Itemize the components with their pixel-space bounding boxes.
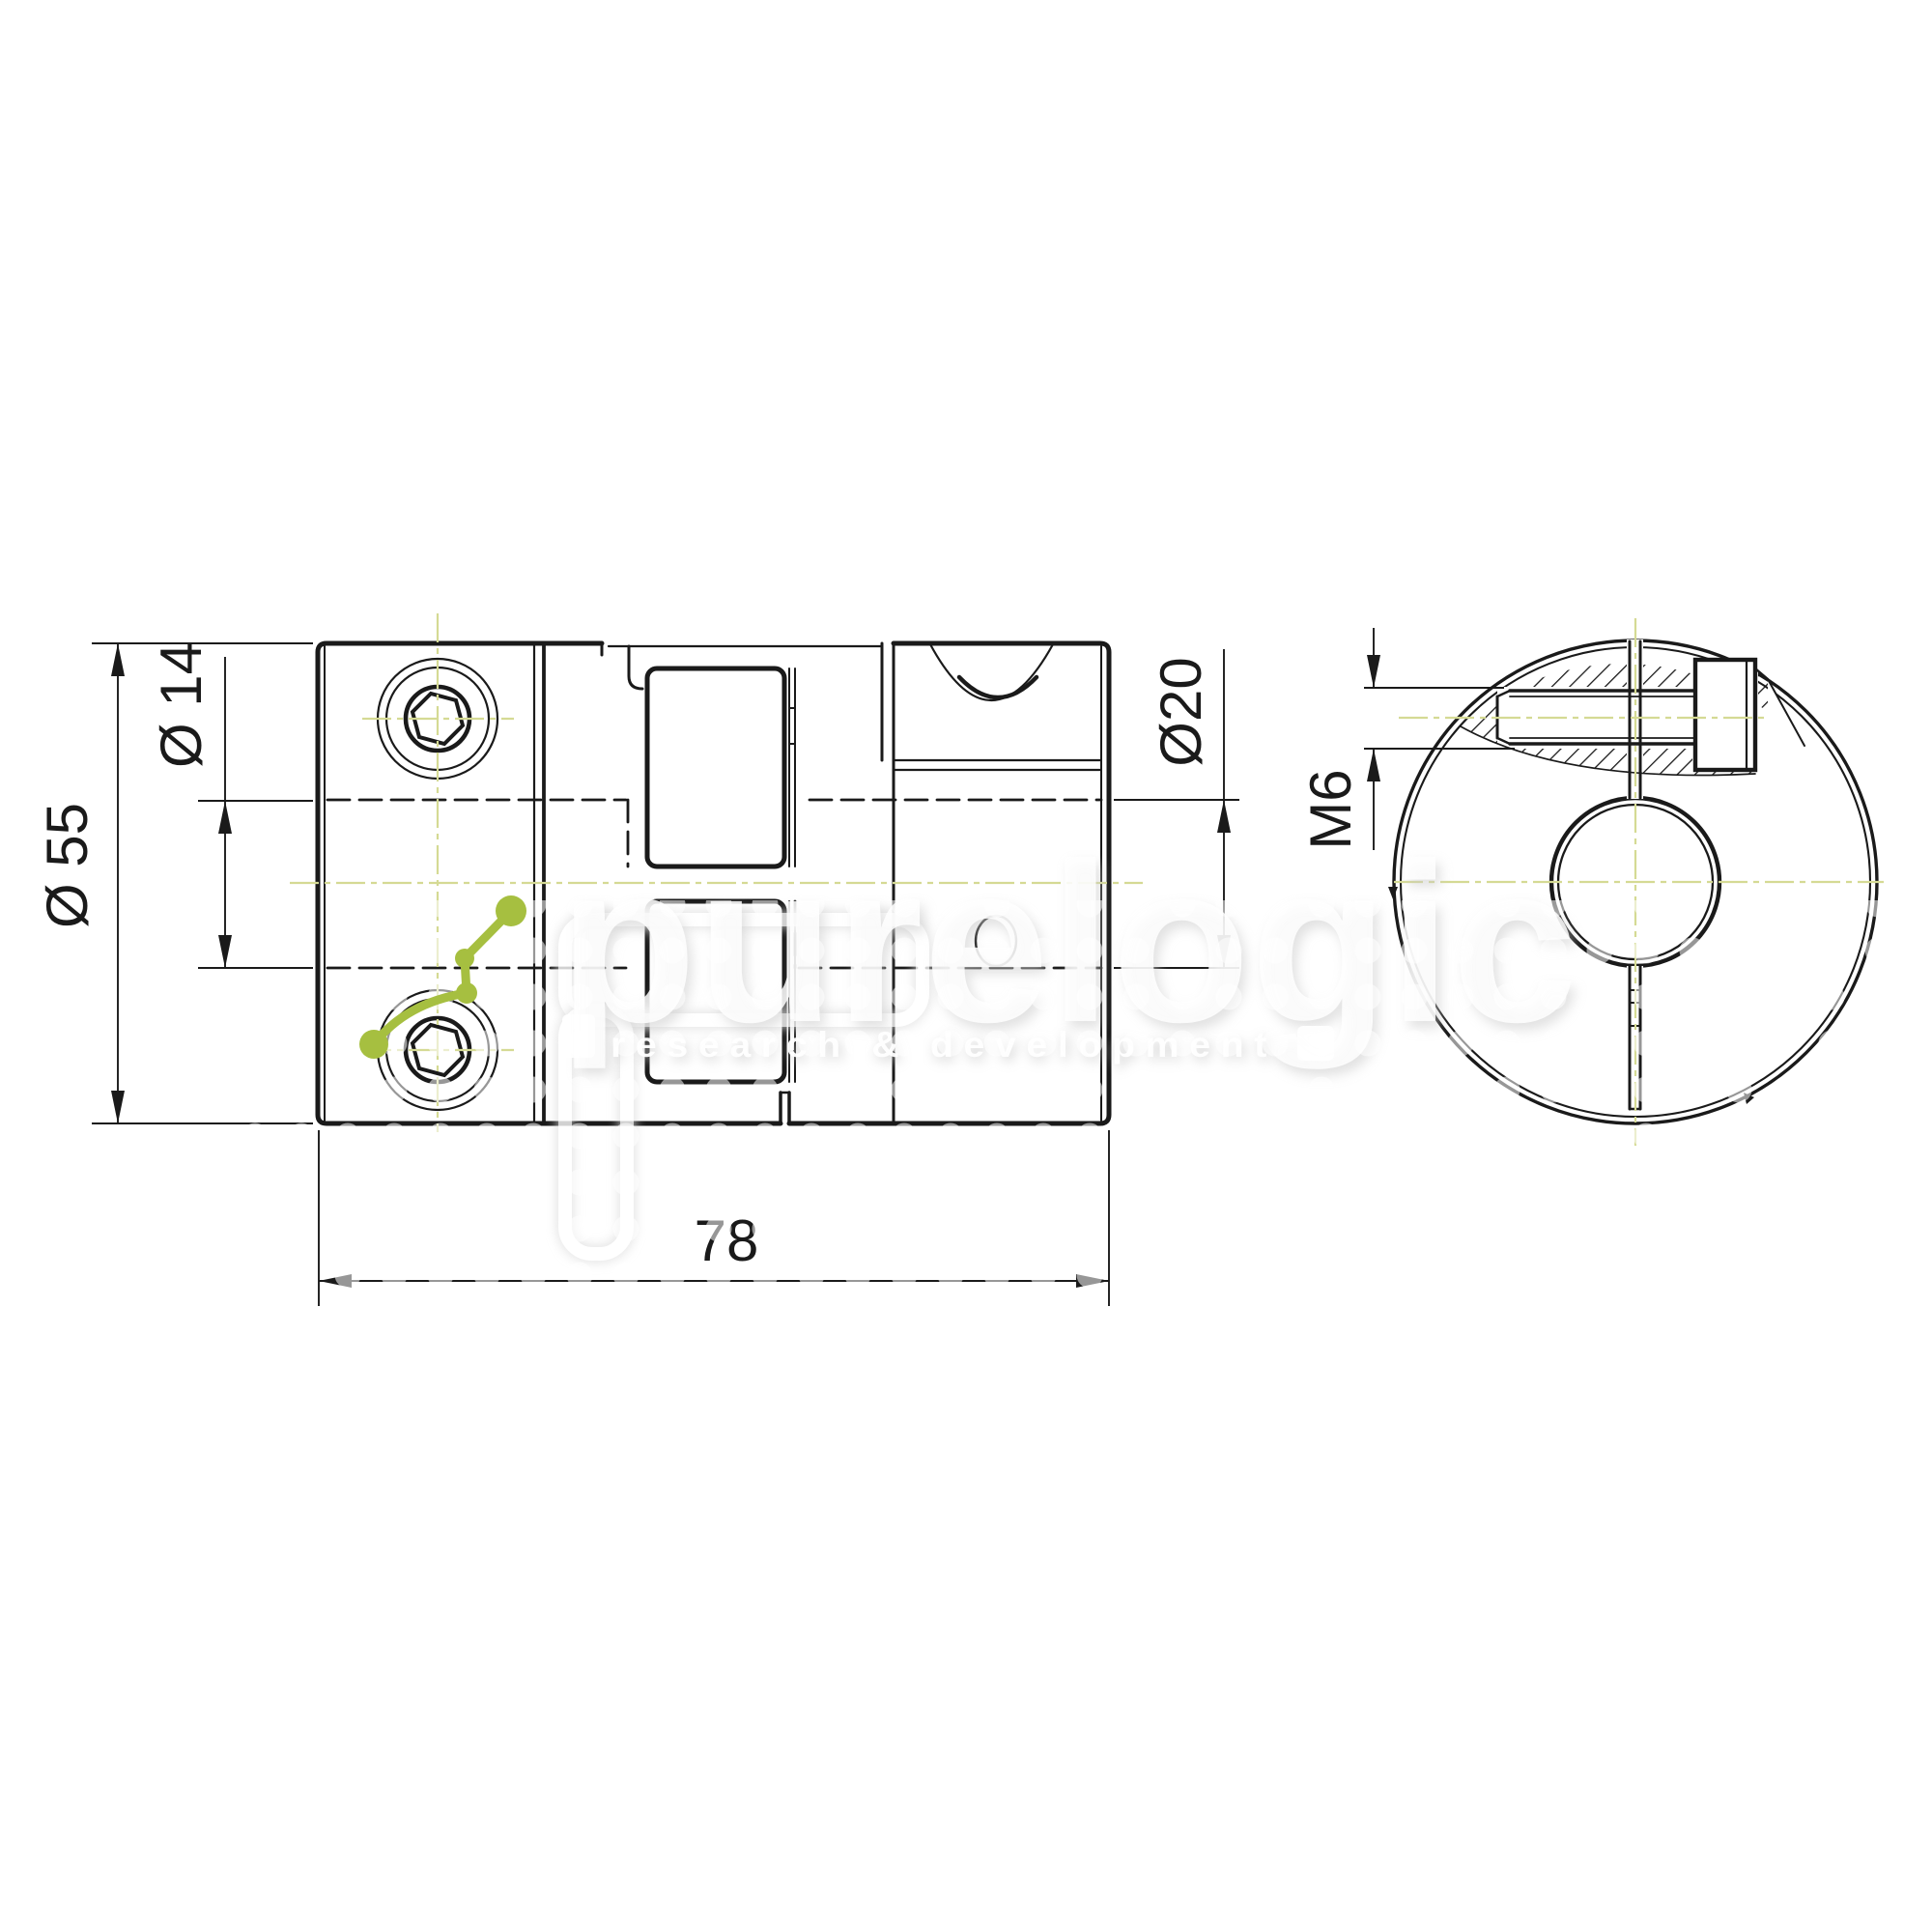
- arrowhead-icon: [1367, 749, 1380, 781]
- dim-label-right-bore: Ø20: [1149, 657, 1213, 766]
- drawing-page: Ø 55 Ø 14 Ø20 M6: [0, 0, 1932, 1932]
- arrowhead-icon: [1367, 655, 1380, 688]
- dot-grid-pattern: [241, 900, 1884, 1376]
- watermark: purelogic purelogic research & developme…: [241, 815, 1884, 1376]
- arrowhead-icon: [218, 935, 232, 968]
- dim-label-left-bore: Ø 14: [149, 642, 213, 768]
- arrowhead-icon: [111, 643, 125, 676]
- dim-label-outer-diameter: Ø 55: [35, 803, 99, 928]
- technical-drawing-canvas: Ø 55 Ø 14 Ø20 M6: [0, 0, 1932, 1932]
- arrowhead-icon: [218, 801, 232, 834]
- arrowhead-icon: [111, 1091, 125, 1123]
